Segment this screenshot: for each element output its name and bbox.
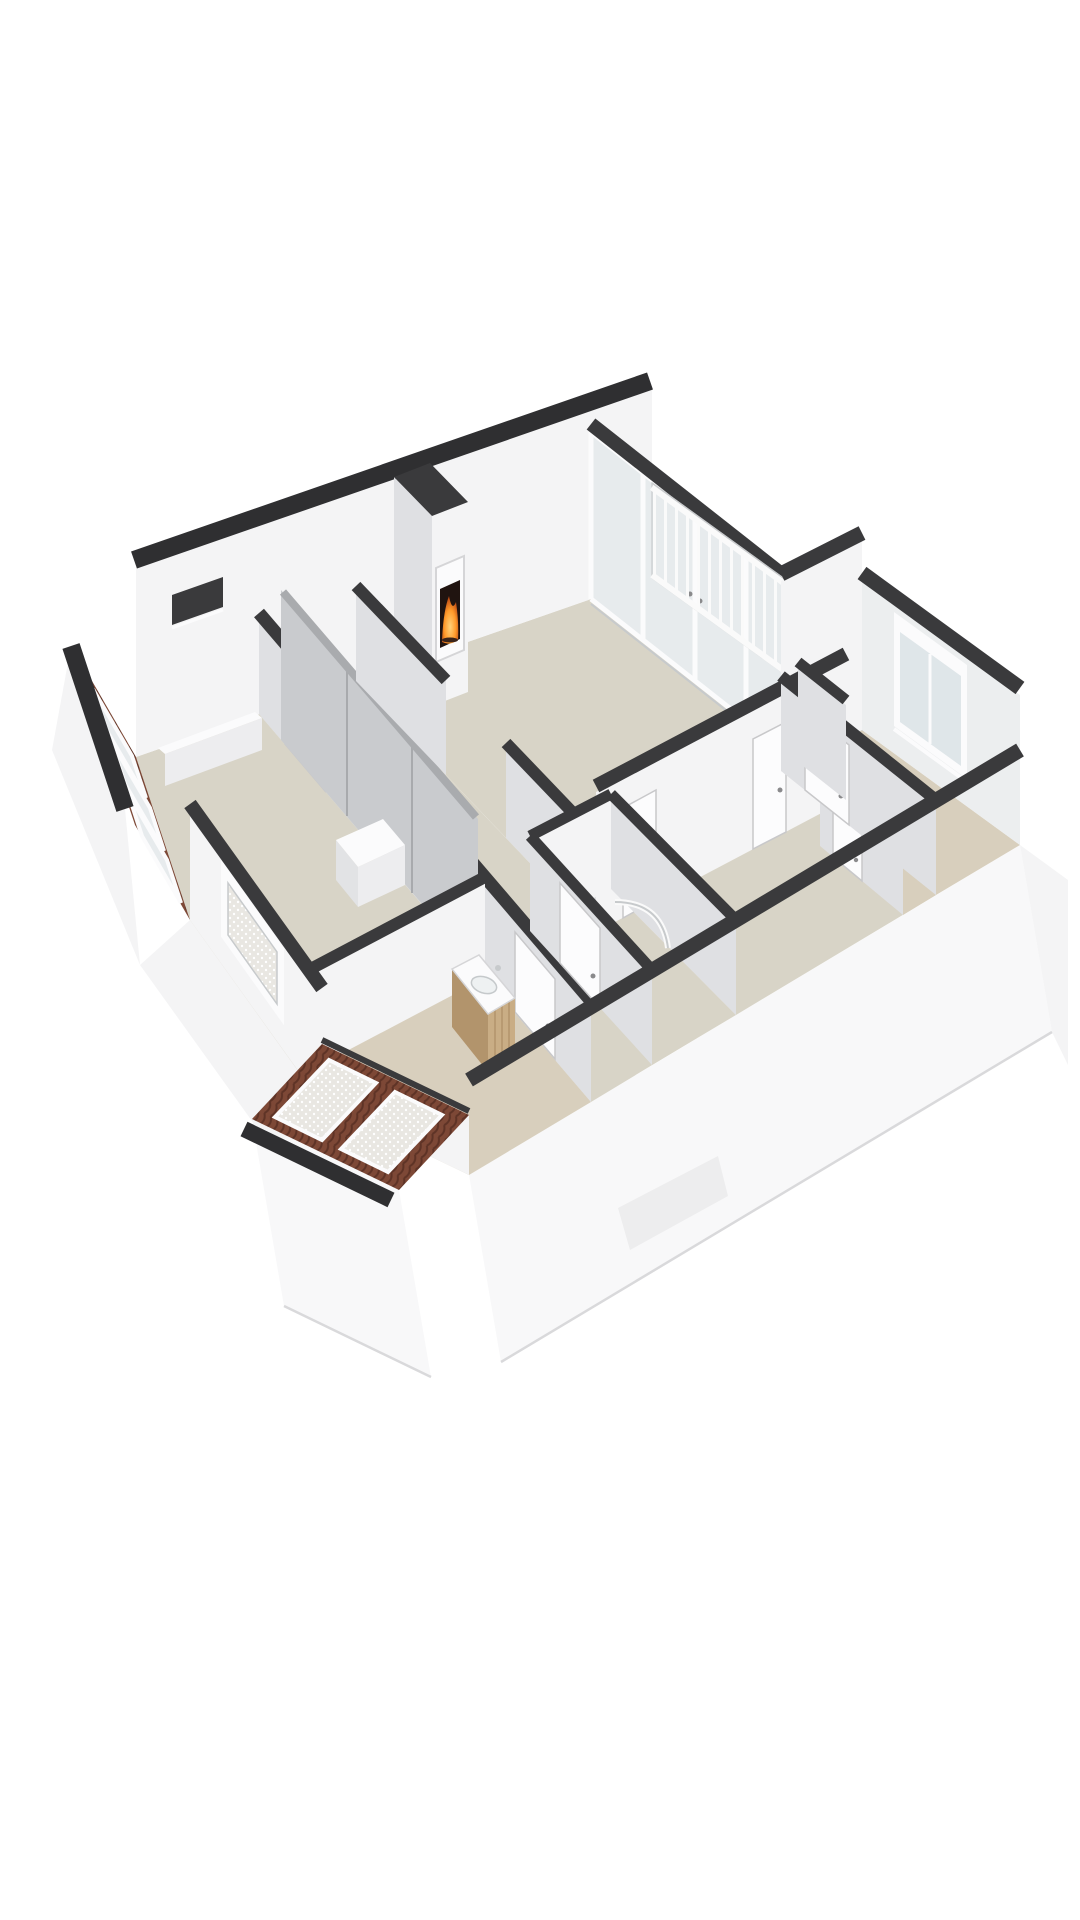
door-handle — [778, 788, 783, 793]
floorplan-3d-svg — [0, 0, 1080, 1920]
door-handle — [854, 858, 858, 862]
floorplan-render-canvas — [0, 0, 1080, 1920]
vanity-tap — [495, 965, 501, 971]
door-handle — [591, 974, 596, 979]
fire-log — [442, 638, 458, 643]
